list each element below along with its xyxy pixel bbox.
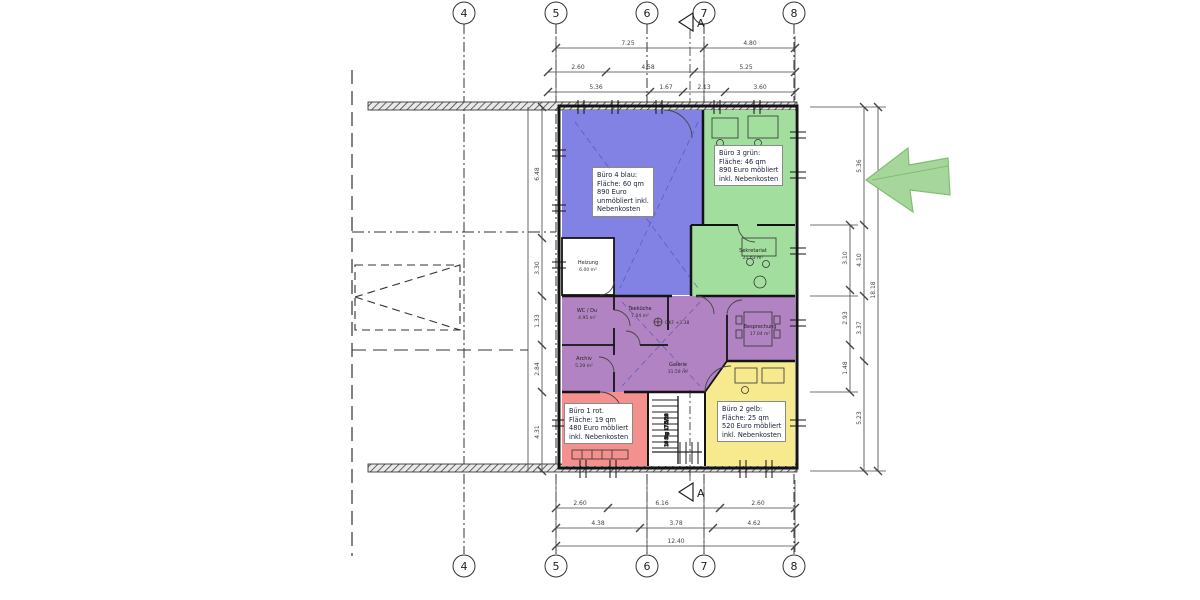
grid-label: 5 xyxy=(553,560,560,573)
dim-value: 1.67 xyxy=(659,84,673,91)
label-line: Büro 2 gelb: xyxy=(722,405,781,414)
label-line: inkl. Nebenkosten xyxy=(569,433,628,442)
label-line: Fläche: 19 qm xyxy=(569,416,628,425)
label-line: 890 Euro möbliert xyxy=(719,166,778,175)
dim-value: 2.84 xyxy=(534,362,541,376)
room-area-sekretariat: 21.63 m² xyxy=(743,255,764,261)
dim-value: 5.36 xyxy=(856,159,863,173)
label-line: Büro 1 rot. xyxy=(569,407,628,416)
label-line: Fläche: 25 qm xyxy=(722,414,781,423)
label-line: 520 Euro möbliert xyxy=(722,422,781,431)
label-line: Fläche: 60 qm xyxy=(597,180,649,189)
dim-value: 2.13 xyxy=(697,84,711,91)
floor-plan-canvas: 4 5 6 7 8 4 5 6 7 8 xyxy=(0,0,1200,600)
label-line: Nebenkosten xyxy=(597,205,649,214)
office-label-yellow: Büro 2 gelb: Fläche: 25 qm 520 Euro möbl… xyxy=(717,401,786,442)
room-area-wc: 4.95 m² xyxy=(578,315,596,321)
dim-value: 3.37 xyxy=(856,321,863,335)
dim-value: 4.58 xyxy=(641,64,655,71)
label-line: unmöbliert inkl. xyxy=(597,197,649,206)
dim-value: 7.25 xyxy=(621,40,635,47)
dim-value: 1.33 xyxy=(534,314,541,328)
room-label-teekueche: Teeküche xyxy=(627,306,651,312)
room-area-teekueche: 7.04 m² xyxy=(631,313,649,319)
dim-value: 1.48 xyxy=(842,361,849,375)
dim-value: 4.10 xyxy=(856,253,863,267)
dim-value: 6.16 xyxy=(655,500,669,507)
room-label-sekretariat: Sekretariat xyxy=(739,248,767,254)
office-label-blue: Büro 4 blau: Fläche: 60 qm 890 Euro unmö… xyxy=(592,167,654,217)
dim-value: 5.23 xyxy=(856,411,863,425)
dim-value: 6.48 xyxy=(534,167,541,181)
label-line: Büro 3 grün: xyxy=(719,149,778,158)
highlight-arrow xyxy=(866,148,950,212)
grid-bubbles-top: 4 5 6 7 8 xyxy=(453,2,805,24)
dim-value: 18.18 xyxy=(870,281,877,298)
room-label-wc: WC / Du xyxy=(577,308,597,314)
dim-value: 4.38 xyxy=(591,520,605,527)
level-label: OKF +3.38 xyxy=(665,320,689,326)
dim-value: 4.31 xyxy=(534,425,541,439)
dim-value: 5.36 xyxy=(589,84,603,91)
dim-value: 2.60 xyxy=(751,500,765,507)
office-label-red: Büro 1 rot. Fläche: 19 qm 480 Euro möbli… xyxy=(564,403,633,444)
label-line: 480 Euro möbliert xyxy=(569,424,628,433)
stairwell-fill xyxy=(648,392,705,466)
dim-value: 2.93 xyxy=(842,311,849,325)
grid-label: 4 xyxy=(461,560,468,573)
dim-value: 2.60 xyxy=(573,500,587,507)
room-area-galerie: 31.59 m² xyxy=(668,369,689,375)
room-label-archiv: Archiv xyxy=(576,356,592,362)
room-label-heizung: Heizung xyxy=(578,260,598,266)
label-line: inkl. Nebenkosten xyxy=(722,431,781,440)
dims-right-text: 3.10 2.93 1.48 5.36 4.10 3.37 5.23 18.18 xyxy=(842,159,877,425)
dim-value: 3.30 xyxy=(534,261,541,275)
site-boundary xyxy=(352,70,556,556)
label-line: Fläche: 46 qm xyxy=(719,158,778,167)
label-line: 890 Euro xyxy=(597,188,649,197)
void-area xyxy=(355,265,460,330)
office-label-green: Büro 3 grün: Fläche: 46 qm 890 Euro möbl… xyxy=(714,145,783,186)
dims-left xyxy=(528,103,546,475)
dim-value: 3.60 xyxy=(753,84,767,91)
label-line: Büro 4 blau: xyxy=(597,171,649,180)
dim-value: 3.10 xyxy=(842,251,849,265)
dim-value: 12.40 xyxy=(667,538,684,545)
grid-label: 6 xyxy=(644,7,651,20)
dim-value: 4.80 xyxy=(743,40,757,47)
grid-label: 5 xyxy=(553,7,560,20)
section-marker-bottom: A xyxy=(679,472,705,501)
grid-label: 4 xyxy=(461,7,468,20)
grid-bubbles-bottom: 4 5 6 7 8 xyxy=(453,555,805,577)
label-line: inkl. Nebenkosten xyxy=(719,175,778,184)
floor-plan-drawing: 4 5 6 7 8 4 5 6 7 8 xyxy=(0,0,1200,600)
stairs-label: 16 Stg 17.5/28 xyxy=(664,413,670,446)
dims-bottom-text: 2.60 6.16 2.60 4.38 3.78 4.62 12.40 xyxy=(573,500,765,545)
dim-value: 4.62 xyxy=(747,520,761,527)
room-label-galerie: Galerie xyxy=(669,362,687,368)
section-label: A xyxy=(697,17,705,30)
room-area-archiv: 5.29 m² xyxy=(575,363,593,369)
grid-label: 6 xyxy=(644,560,651,573)
dim-value: 2.60 xyxy=(571,64,585,71)
grid-label: 8 xyxy=(791,560,798,573)
room-label-besprechung: Besprechung xyxy=(744,324,777,330)
dim-value: 5.25 xyxy=(739,64,753,71)
room-heizung-white xyxy=(562,238,614,295)
arrow-left-icon xyxy=(866,148,950,212)
grid-label: 7 xyxy=(701,560,708,573)
dims-left-text: 6.48 3.30 1.33 2.84 4.31 xyxy=(534,167,541,439)
grid-label: 8 xyxy=(791,7,798,20)
room-area-heizung: 6.00 m² xyxy=(579,267,597,273)
dim-value: 3.78 xyxy=(669,520,683,527)
room-area-besprechung: 17.04 m² xyxy=(750,331,771,337)
